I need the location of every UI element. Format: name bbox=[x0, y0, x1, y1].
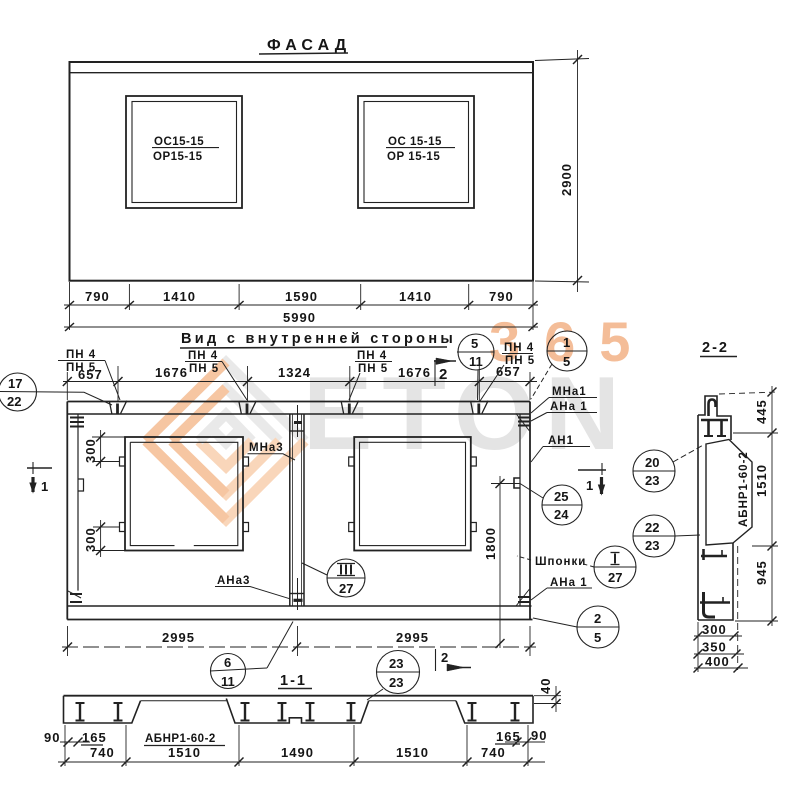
svg-text:5: 5 bbox=[563, 354, 570, 369]
svg-text:165: 165 bbox=[82, 730, 107, 745]
svg-text:1490: 1490 bbox=[281, 745, 314, 760]
svg-text:ОР 15-15: ОР 15-15 bbox=[387, 151, 440, 163]
svg-text:АБНР1-60-2: АБНР1-60-2 bbox=[738, 451, 750, 527]
svg-text:300: 300 bbox=[83, 438, 98, 463]
svg-text:90: 90 bbox=[531, 728, 547, 743]
svg-text:17: 17 bbox=[8, 376, 22, 391]
svg-text:1410: 1410 bbox=[163, 289, 196, 304]
svg-text:11: 11 bbox=[221, 674, 235, 689]
svg-text:АНа3: АНа3 bbox=[217, 575, 250, 587]
svg-text:24: 24 bbox=[554, 507, 569, 522]
svg-text:22: 22 bbox=[645, 520, 659, 535]
svg-text:ПН 5: ПН 5 bbox=[66, 362, 96, 374]
svg-text:МНа1: МНа1 bbox=[552, 386, 587, 398]
svg-text:300: 300 bbox=[702, 622, 727, 637]
svg-text:1: 1 bbox=[563, 335, 570, 350]
svg-text:740: 740 bbox=[481, 745, 506, 760]
svg-text:ПН 5: ПН 5 bbox=[358, 363, 388, 375]
svg-text:АБНР1-60-2: АБНР1-60-2 bbox=[145, 733, 216, 745]
svg-text:22: 22 bbox=[7, 394, 21, 409]
svg-text:11: 11 bbox=[469, 354, 483, 369]
svg-text:1676: 1676 bbox=[155, 365, 188, 380]
svg-text:2: 2 bbox=[441, 650, 448, 665]
svg-text:Шпонки: Шпонки bbox=[535, 556, 586, 568]
svg-text:400: 400 bbox=[705, 654, 730, 669]
svg-text:ОС15-15: ОС15-15 bbox=[154, 136, 204, 148]
svg-text:2995: 2995 bbox=[162, 630, 195, 645]
svg-text:90: 90 bbox=[44, 730, 60, 745]
svg-text:АНа 1: АНа 1 bbox=[550, 401, 588, 413]
svg-text:1676: 1676 bbox=[398, 365, 431, 380]
svg-text:2-2: 2-2 bbox=[702, 340, 729, 356]
svg-text:ФАСАД: ФАСАД bbox=[267, 37, 351, 54]
svg-text:2995: 2995 bbox=[396, 630, 429, 645]
svg-text:ПН 5: ПН 5 bbox=[189, 363, 219, 375]
svg-text:ПН 4: ПН 4 bbox=[357, 350, 387, 362]
svg-text:740: 740 bbox=[90, 745, 115, 760]
svg-text:20: 20 bbox=[645, 455, 659, 470]
svg-text:Вид с внутренней стороны: Вид с внутренней стороны bbox=[181, 331, 456, 347]
svg-text:27: 27 bbox=[608, 570, 622, 585]
svg-text:23: 23 bbox=[389, 656, 403, 671]
svg-text:350: 350 bbox=[702, 640, 727, 655]
svg-text:6: 6 bbox=[224, 655, 231, 670]
svg-text:2: 2 bbox=[594, 611, 601, 626]
svg-text:1800: 1800 bbox=[483, 527, 498, 560]
svg-text:300: 300 bbox=[83, 527, 98, 552]
svg-text:АНа 1: АНа 1 bbox=[550, 577, 588, 589]
svg-text:790: 790 bbox=[85, 289, 110, 304]
svg-text:5: 5 bbox=[594, 630, 601, 645]
svg-text:1: 1 bbox=[41, 479, 48, 494]
svg-text:1510: 1510 bbox=[754, 464, 769, 497]
svg-text:1510: 1510 bbox=[396, 745, 429, 760]
svg-text:945: 945 bbox=[754, 560, 769, 585]
svg-text:1410: 1410 bbox=[399, 289, 432, 304]
svg-text:40: 40 bbox=[538, 678, 553, 694]
svg-text:1590: 1590 bbox=[285, 289, 318, 304]
svg-text:ПН 4: ПН 4 bbox=[66, 349, 96, 361]
svg-text:ПН 5: ПН 5 bbox=[505, 355, 535, 367]
svg-text:АН1: АН1 bbox=[548, 435, 574, 447]
svg-text:5990: 5990 bbox=[283, 310, 316, 325]
svg-text:27: 27 bbox=[339, 581, 353, 596]
svg-text:25: 25 bbox=[554, 489, 568, 504]
svg-text:2: 2 bbox=[439, 366, 447, 383]
svg-text:23: 23 bbox=[389, 675, 403, 690]
svg-text:ПН 4: ПН 4 bbox=[504, 342, 534, 354]
svg-text:1: 1 bbox=[586, 478, 593, 493]
svg-text:23: 23 bbox=[645, 538, 659, 553]
svg-text:ОС 15-15: ОС 15-15 bbox=[388, 136, 442, 148]
svg-text:ОР15-15: ОР15-15 bbox=[153, 151, 203, 163]
svg-text:1324: 1324 bbox=[278, 365, 311, 380]
svg-text:23: 23 bbox=[645, 473, 659, 488]
svg-text:790: 790 bbox=[489, 289, 514, 304]
svg-text:5: 5 bbox=[471, 336, 478, 351]
svg-text:ПН 4: ПН 4 bbox=[188, 350, 218, 362]
svg-text:1510: 1510 bbox=[168, 745, 201, 760]
svg-text:1-1: 1-1 bbox=[280, 673, 307, 689]
svg-text:МНа3: МНа3 bbox=[249, 442, 284, 454]
svg-text:445: 445 bbox=[754, 399, 769, 424]
svg-text:2900: 2900 bbox=[559, 163, 574, 196]
